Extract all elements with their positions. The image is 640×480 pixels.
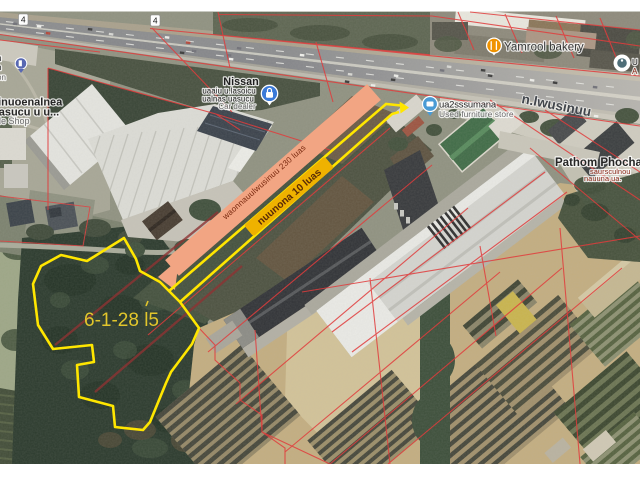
svg-text:n: n: [0, 63, 1, 72]
svg-text:Car dealer: Car dealer: [218, 102, 256, 111]
svg-text:dle Shop: dle Shop: [0, 116, 30, 126]
svg-text:U: U: [632, 58, 638, 67]
svg-text:on: on: [0, 73, 6, 82]
svg-text:u: u: [0, 54, 1, 63]
svg-text:4: 4: [21, 15, 26, 25]
svg-text:Yamrool bakery: Yamrool bakery: [504, 42, 584, 54]
svg-text:nauuna ua.: nauuna ua.: [584, 174, 622, 183]
svg-text:A: A: [632, 67, 638, 76]
svg-text:4: 4: [153, 16, 158, 26]
svg-text:6-1-28 l5: 6-1-28 l5: [84, 310, 159, 331]
svg-text:Used furniture store: Used furniture store: [439, 109, 514, 119]
